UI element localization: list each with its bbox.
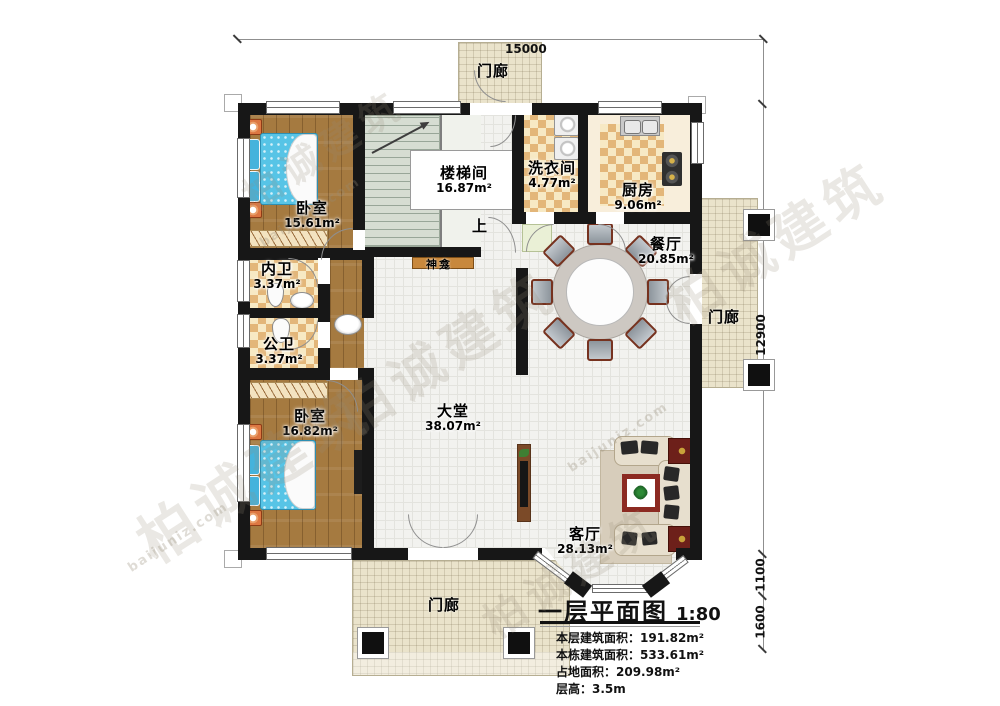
room-area: 3.37m² [248,353,310,366]
plant-leaf [519,449,529,457]
bed-blanket [284,441,315,509]
stairwell-landing: 楼梯间 16.87m² [410,150,518,210]
washing-machine [554,113,579,136]
watermark-site: baijuniz.com [125,499,231,575]
door-opening [353,230,365,250]
window [237,424,250,502]
sink-basin [642,120,658,134]
sofa-cushion [663,466,680,482]
wall [362,380,374,548]
window [266,101,340,114]
room-area: 15.61m² [272,217,352,230]
door-opening [318,258,330,284]
room-name: 洗衣间 [512,160,592,177]
title-underline-thin [540,626,700,627]
door-opening [596,212,624,224]
sofa-cushion [641,531,657,545]
chair [587,339,613,361]
kitchen-sink [620,116,660,136]
room-name: 卧室 [270,408,350,425]
wall [362,250,374,318]
window [266,547,352,560]
shrine-label: 神龛 [426,256,452,272]
room-label-bath: 公卫 3.37m² [248,336,310,366]
door-opening [408,548,478,560]
wall [362,247,481,257]
column [358,628,388,658]
stat-line: 占地面积：209.98m² [556,664,704,681]
wardrobe [242,230,328,247]
room-label-dining: 餐厅 20.85m² [626,236,706,266]
door-opening [470,103,532,115]
column [504,628,534,658]
room-name: 公卫 [248,336,310,353]
room-label-bedroom1: 卧室 15.61m² [272,200,352,230]
room-area: 3.37m² [246,278,308,291]
room-label-living: 客厅 28.13m² [545,526,625,556]
room-label-laundry: 洗衣间 4.77m² [512,160,592,190]
bedroom-tv [354,450,362,494]
window [393,101,461,114]
sofa-cushion [620,440,638,455]
room-area: 9.06m² [598,199,678,212]
door-opening [526,212,554,224]
door-opening [318,322,330,348]
room-name: 客厅 [545,526,625,543]
window [691,122,704,164]
stove [662,152,682,186]
room-label-hall: 大堂 38.07m² [413,403,493,433]
tv [520,461,528,507]
dimension-right-label: 12900 [754,314,768,356]
stat-line: 本层建筑面积：191.82m² [556,630,704,647]
sofa-cushion [663,485,680,501]
dimension-top-label: 15000 [505,42,547,56]
chair [531,279,553,305]
stats-block: 本层建筑面积：191.82m² 本栋建筑面积：533.61m² 占地面积：209… [556,630,704,698]
room-name: 大堂 [413,403,493,420]
sofa-cushion [640,440,658,454]
bed-blanket [286,134,317,204]
room-label-ensuite: 内卫 3.37m² [246,261,308,291]
sofa-cushion [663,504,679,519]
room-area: 16.87m² [436,182,492,195]
room-area: 28.13m² [545,543,625,556]
wardrobe [242,382,328,399]
column [744,210,774,240]
washing-machine [554,137,579,160]
room-area: 20.85m² [626,253,706,266]
corridor-basin [334,314,362,335]
room-name: 厨房 [598,182,678,199]
room-name: 内卫 [246,261,308,278]
dimension-right-bottom-label: 1600 [754,605,768,638]
bathroom-sink [290,292,314,309]
corridor-floor [330,248,364,370]
room-name: 卧室 [272,200,352,217]
porch-right-label: 门廊 [708,306,740,327]
room-area: 4.77m² [512,177,592,190]
column [744,360,774,390]
room-area: 38.07m² [413,420,493,433]
door-opening [330,368,358,380]
room-area: 16.82m² [270,425,350,438]
window [237,138,250,198]
dining-table-top [566,258,634,326]
room-label-kitchen: 厨房 9.06m² [598,182,678,212]
room-name: 楼梯间 [436,165,492,182]
floor-plan: 15000 12900 1100 1600 楼梯间 16.87m² [0,0,1000,706]
stat-line: 本栋建筑面积：533.61m² [556,647,704,664]
porch-top-label: 门廊 [477,60,509,81]
dimension-right-lower-label: 1100 [754,558,768,591]
wall [240,308,320,318]
wall [353,115,365,232]
stat-line: 层高：3.5m [556,681,704,698]
sink-basin [624,120,641,134]
window [598,101,662,114]
door-opening [690,274,702,324]
porch-bottom-label: 门廊 [428,594,460,615]
wall [516,268,528,375]
room-name: 餐厅 [626,236,706,253]
room-label-stairwell: 楼梯间 16.87m² [436,165,492,195]
stair-up-label: 上 [472,215,488,236]
dimension-line-top [238,39,765,40]
room-label-bedroom2: 卧室 16.82m² [270,408,350,438]
title-underline [540,621,700,624]
wall [690,103,702,560]
